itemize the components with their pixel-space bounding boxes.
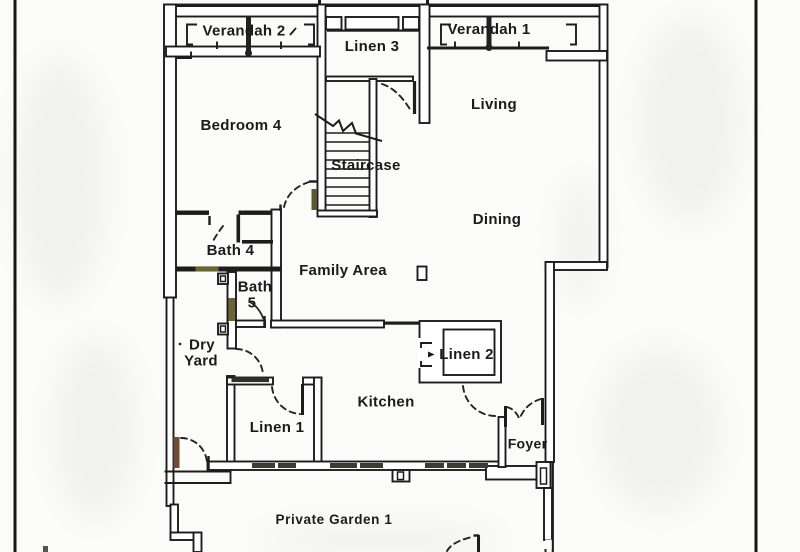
svg-text:Family Area: Family Area: [299, 262, 387, 279]
svg-text:Linen 1: Linen 1: [250, 419, 305, 436]
svg-text:Staircase: Staircase: [331, 157, 400, 174]
svg-text:Linen 2: Linen 2: [439, 346, 494, 363]
svg-text:Bath: Bath: [238, 279, 273, 296]
svg-text:Verandah 1: Verandah 1: [447, 21, 530, 38]
svg-text:Dining: Dining: [473, 211, 521, 228]
svg-text:Bath 4: Bath 4: [207, 242, 255, 259]
svg-text:Yard: Yard: [184, 353, 218, 370]
svg-text:Verandah 2: Verandah 2: [202, 23, 285, 40]
svg-text:Private Garden 1: Private Garden 1: [276, 512, 393, 527]
svg-text:Dry: Dry: [189, 337, 215, 354]
svg-text:Living: Living: [471, 96, 517, 113]
svg-text:Bedroom 4: Bedroom 4: [200, 117, 281, 134]
svg-text:Kitchen: Kitchen: [357, 394, 414, 411]
svg-text:Foyer: Foyer: [508, 436, 548, 452]
svg-text:5: 5: [248, 295, 257, 312]
svg-text:Linen 3: Linen 3: [345, 38, 400, 55]
